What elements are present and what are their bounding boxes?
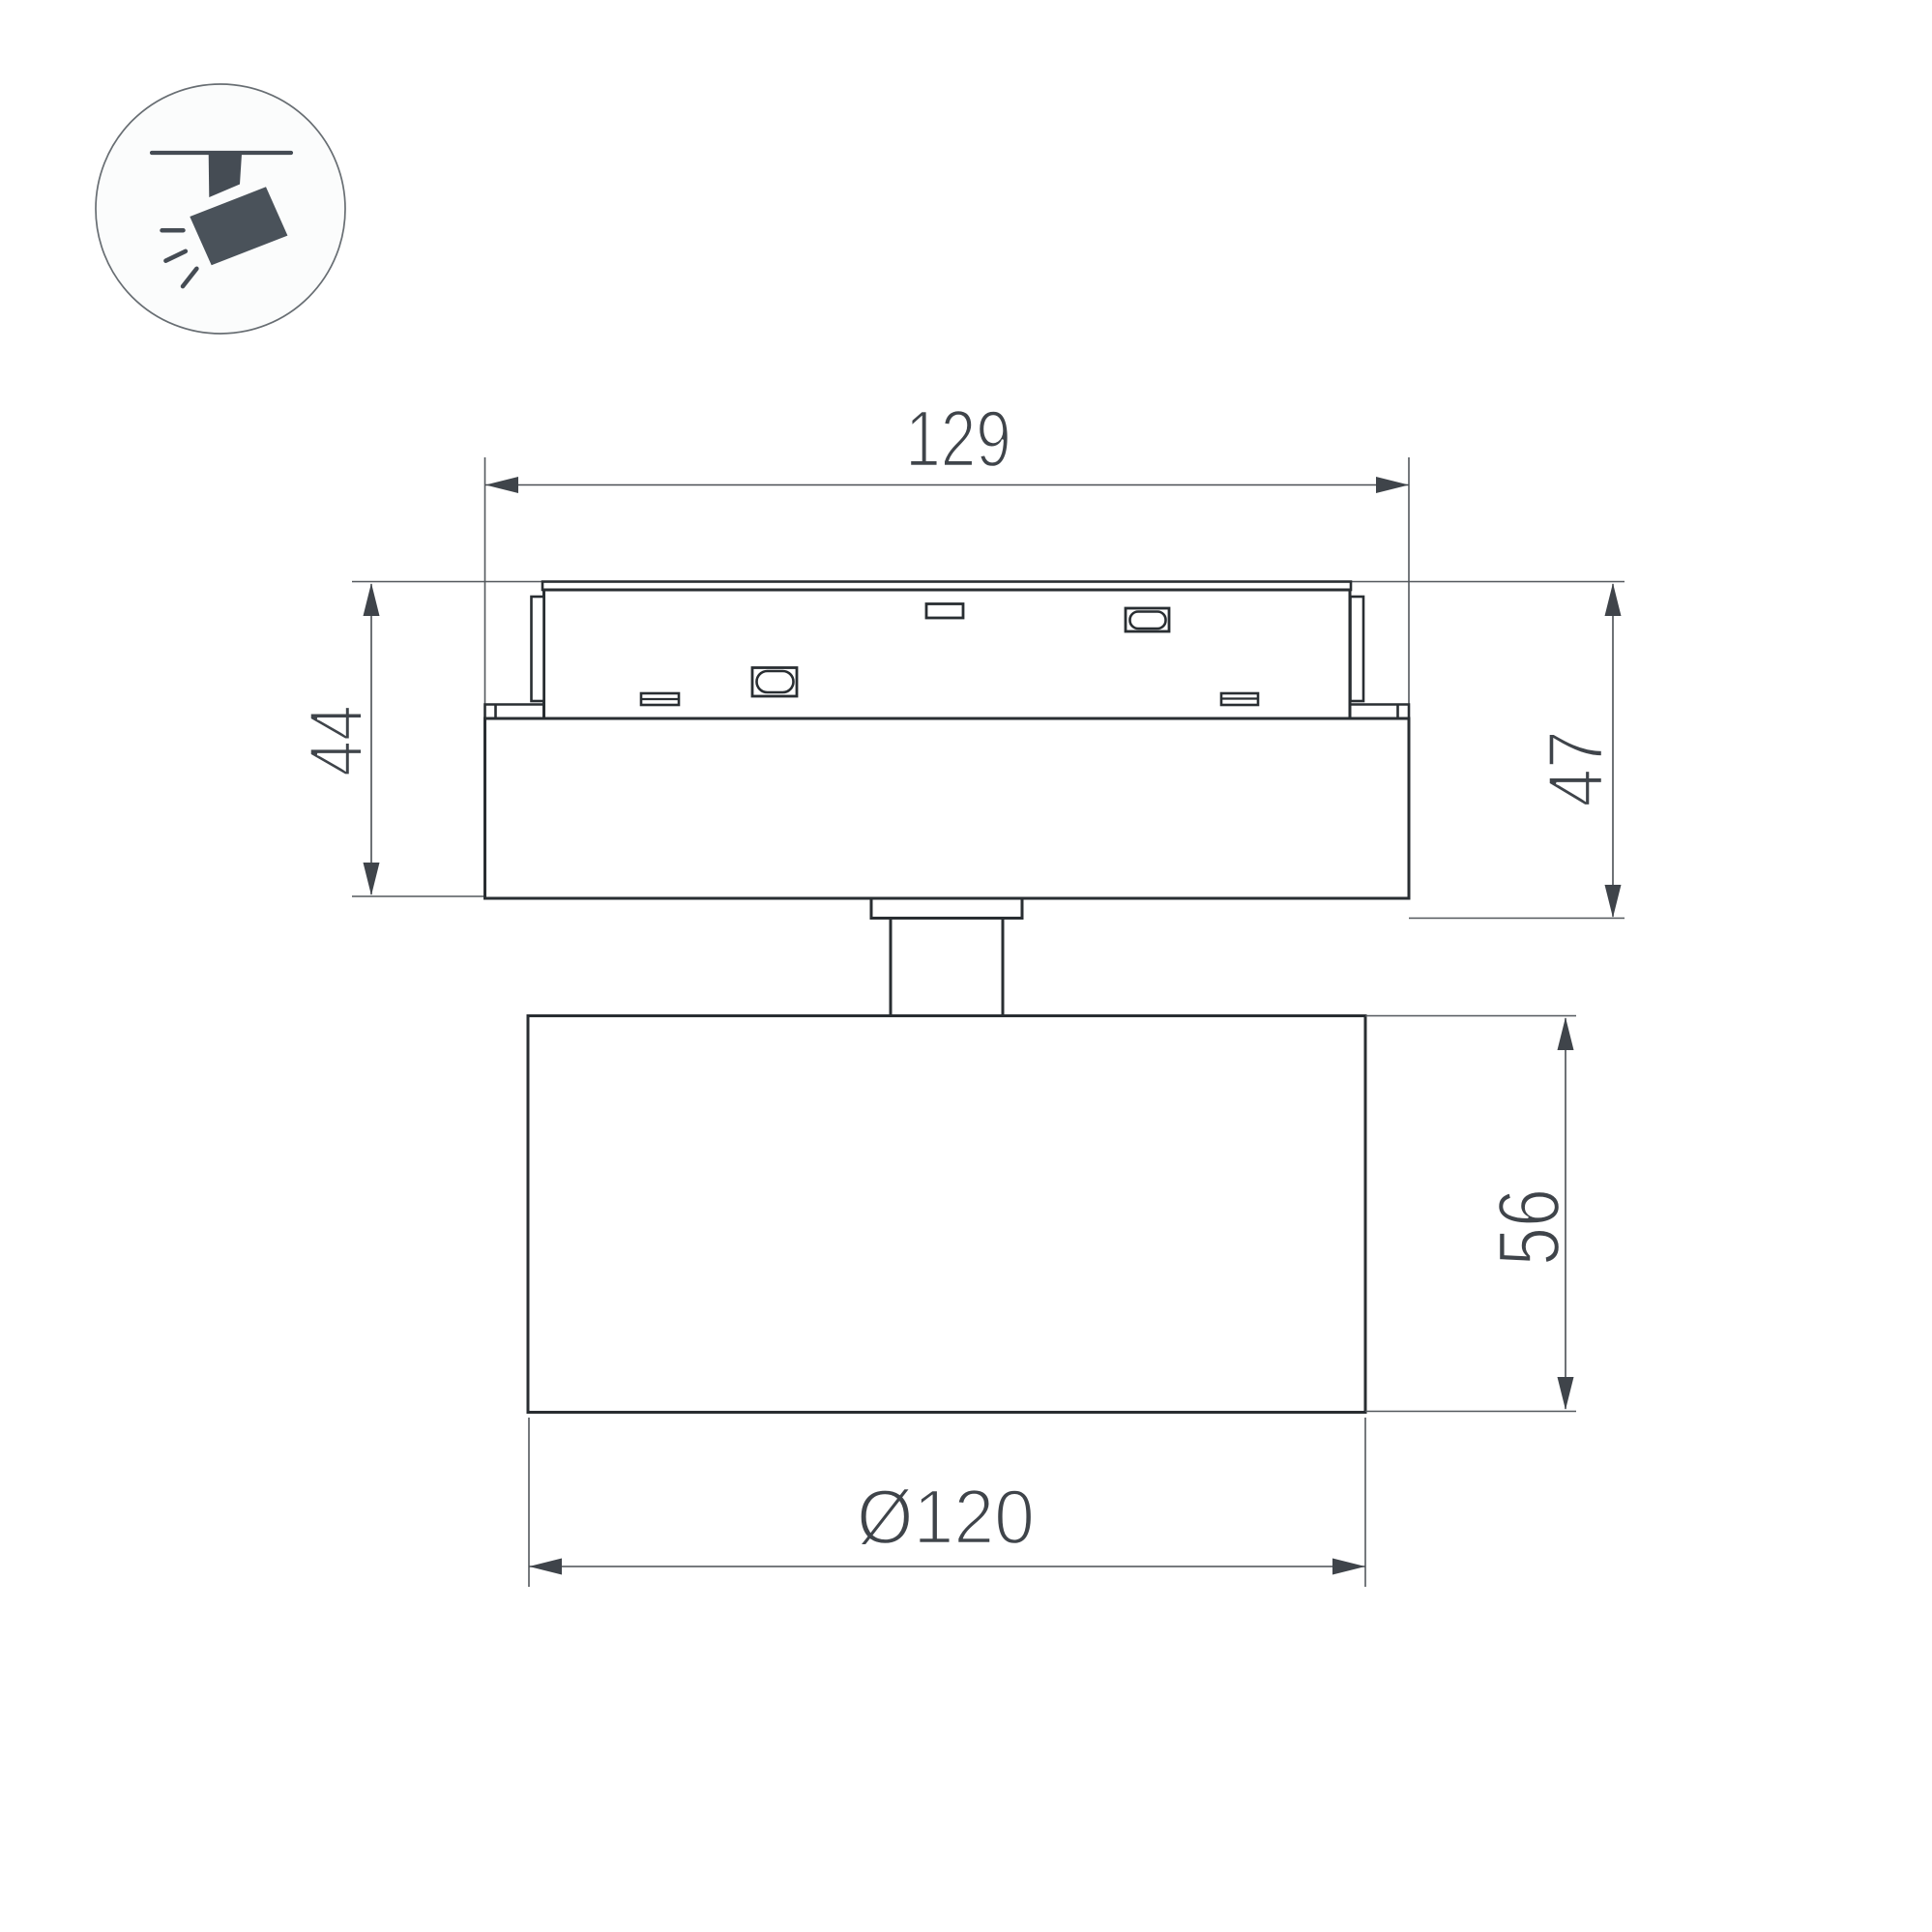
svg-text:56: 56 (1480, 1188, 1577, 1266)
svg-text:Ø120: Ø120 (857, 1475, 1035, 1561)
svg-text:44: 44 (294, 705, 378, 776)
svg-text:47: 47 (1533, 730, 1620, 806)
svg-text:129: 129 (905, 394, 1010, 483)
